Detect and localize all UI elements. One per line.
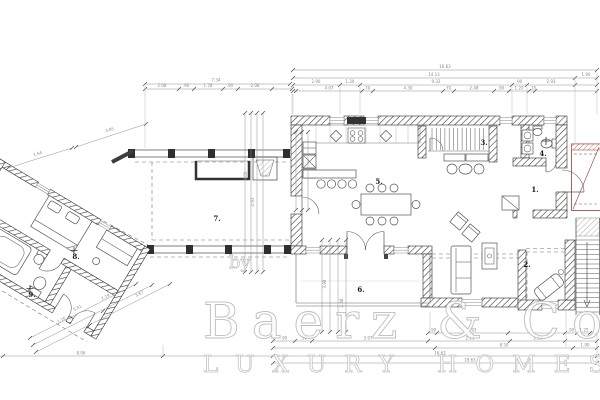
- sofa: [451, 246, 471, 294]
- dim-label: 14.13: [428, 72, 440, 77]
- room-label-4: 4.: [539, 149, 546, 158]
- dim-label: 1.64: [33, 150, 43, 158]
- window-bottom-1: [306, 248, 320, 254]
- watermark: by Baerz & Co LUXURY HOMES: [203, 252, 600, 378]
- room-label-3: 3.: [480, 138, 487, 147]
- dim-label: 5.41: [72, 303, 83, 312]
- watermark-by: by: [229, 252, 252, 273]
- dim-label: 3.00: [243, 171, 248, 180]
- dim-label: 2.08: [158, 83, 167, 88]
- dim-label: .35: [530, 86, 537, 91]
- dim-label: .90: [516, 79, 523, 84]
- fridge: [303, 142, 316, 154]
- sink2-icon: [380, 130, 391, 141]
- oven: [303, 155, 316, 168]
- sideboard2: [466, 154, 488, 161]
- armchair-diag-1: [450, 212, 468, 230]
- room-label-9: 9.: [28, 290, 35, 299]
- dim-label: 2.93: [250, 197, 255, 206]
- room-label-1: 1.: [531, 185, 538, 194]
- hall-closet: [502, 196, 519, 210]
- armchair-pair-round: [447, 164, 484, 174]
- dryer: [522, 143, 533, 154]
- floor-plan-canvas: 7.34 2.08 .90 1.78 .90 2.08 16.63 14.13 …: [0, 0, 600, 400]
- sideboard: [444, 154, 465, 161]
- dim-label: 1.20: [346, 79, 355, 84]
- chair: [91, 256, 101, 266]
- dim-label: 16.63: [439, 64, 451, 69]
- toilet: [541, 139, 556, 148]
- breakfast-bar: [303, 170, 357, 188]
- window-top-3: [500, 118, 512, 124]
- dim-label: 1.90: [582, 72, 591, 77]
- window-top-1: [330, 118, 344, 124]
- washer: [522, 130, 533, 141]
- wing-door-1: [55, 294, 77, 316]
- window-bottom-2: [394, 248, 408, 254]
- cooktop: [348, 128, 365, 143]
- side-table: [482, 243, 497, 269]
- dim-label: 2.90: [312, 79, 321, 84]
- floor-plan-page: 7.34 2.08 .90 1.78 .90 2.08 16.63 14.13 …: [0, 0, 600, 400]
- wing-window-1: [36, 183, 50, 194]
- plant: [559, 270, 564, 275]
- watermark-tagline: LUXURY HOMES: [203, 352, 600, 378]
- room-label-8: 8.: [72, 252, 79, 261]
- room-label-2: 2.: [523, 260, 530, 269]
- room-label-7: 7.: [213, 214, 220, 223]
- dim-label: .90: [227, 83, 234, 88]
- dim-label: 1.20: [515, 86, 524, 91]
- dim-label: 3.67: [134, 289, 145, 298]
- dim-label: 1.78: [204, 83, 213, 88]
- french-door-terrace: [347, 232, 384, 251]
- dim-label: 1.16: [56, 315, 67, 324]
- door-side-entrance: [302, 197, 319, 214]
- watermark-brand: Baerz & Co: [203, 292, 600, 350]
- dim-label: 9.32: [432, 79, 441, 84]
- bbq-grill: [253, 157, 277, 180]
- kitchen: [302, 117, 420, 188]
- sink-icon: [330, 130, 341, 141]
- dim-label: 4.07: [325, 86, 334, 91]
- room-label-5: 5.: [375, 177, 382, 186]
- basin: [533, 126, 542, 136]
- dim-label: 3.98: [322, 279, 327, 288]
- dim-label: .70: [364, 86, 371, 91]
- entry-hall: [502, 196, 519, 210]
- dim-label: 8.06: [77, 351, 86, 356]
- dim-label: 2.48: [470, 86, 479, 91]
- dim-label: .90: [498, 86, 505, 91]
- red-annex: [572, 144, 600, 211]
- window-top-2: [364, 118, 378, 124]
- dim-label: .70: [445, 86, 452, 91]
- dim-label: .90: [183, 83, 190, 88]
- dim-label: 2.93: [547, 79, 556, 84]
- dim-label: 3.85: [105, 126, 115, 134]
- armchair-diag-2: [462, 224, 480, 242]
- dining-table: [352, 184, 420, 225]
- planter: [195, 161, 250, 179]
- dim-label: 7.34: [212, 78, 221, 83]
- dim-label: 4.30: [404, 86, 413, 91]
- door-wc: [546, 162, 556, 172]
- door-annex: [562, 170, 584, 192]
- cooker-hood: [347, 117, 366, 124]
- living-area: [432, 164, 518, 294]
- window-top-4: [544, 118, 556, 124]
- dim-label: 2.08: [251, 83, 260, 88]
- wing-window-2: [98, 221, 111, 231]
